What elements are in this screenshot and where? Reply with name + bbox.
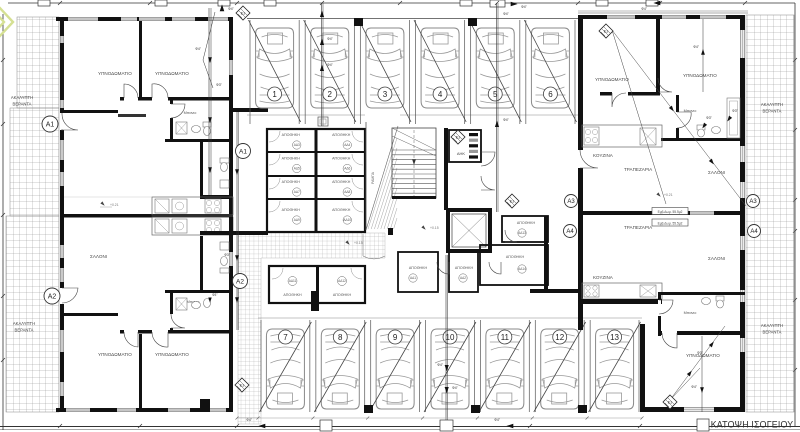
svg-text:Φ3": Φ3" xyxy=(224,253,231,257)
svg-text:Φ3": Φ3" xyxy=(706,116,713,120)
svg-text:ΒΕΡΑΝΤΑ: ΒΕΡΑΝΤΑ xyxy=(763,330,782,335)
svg-text:Φ4": Φ4" xyxy=(503,118,510,122)
svg-text:ΤΡΑΠΕΖΑΡΙΑ: ΤΡΑΠΕΖΑΡΙΑ xyxy=(624,225,653,230)
svg-text:A1: A1 xyxy=(46,122,55,129)
svg-text:ΑΔ8: ΑΔ8 xyxy=(344,190,350,194)
svg-text:ΒΕΡΑΝΤΑ: ΒΕΡΑΝΤΑ xyxy=(15,328,34,333)
svg-text:A2: A2 xyxy=(48,294,57,301)
svg-text:+0.15: +0.15 xyxy=(354,241,363,245)
svg-text:Φ3": Φ3" xyxy=(216,83,223,87)
svg-text:ΥΠΝΟΔΩΜΑΤΙΟ: ΥΠΝΟΔΩΜΑΤΙΟ xyxy=(683,73,717,78)
svg-text:ΑΠΟΘΗΚΗ: ΑΠΟΘΗΚΗ xyxy=(332,157,351,161)
svg-text:ΑΚΑΛΥΠΤΗ: ΑΚΑΛΥΠΤΗ xyxy=(13,321,35,326)
svg-text:ΑΔ6: ΑΔ6 xyxy=(344,167,350,171)
svg-text:ΑΠΟΘΗΚΗ: ΑΠΟΘΗΚΗ xyxy=(282,180,301,184)
svg-text:Φ3": Φ3" xyxy=(697,351,704,355)
svg-text:5: 5 xyxy=(493,90,498,99)
svg-text:4: 4 xyxy=(438,90,443,99)
svg-text:7: 7 xyxy=(283,333,288,342)
svg-text:ΑΠΟΘΗΚΗ: ΑΠΟΘΗΚΗ xyxy=(283,293,302,297)
svg-text:Φ4": Φ4" xyxy=(437,363,444,367)
svg-text:ΚΟΥΖΙΝΑ: ΚΟΥΖΙΝΑ xyxy=(593,275,614,280)
svg-text:ΑΠΟΘΗΚΗ: ΑΠΟΘΗΚΗ xyxy=(409,266,428,270)
svg-text:6: 6 xyxy=(548,90,553,99)
svg-text:ΒΕΡΑΝΤΑ: ΒΕΡΑΝΤΑ xyxy=(763,109,782,114)
svg-text:ΑΔ13: ΑΔ13 xyxy=(518,231,526,235)
svg-text:Φ4": Φ4" xyxy=(452,386,459,390)
svg-text:9: 9 xyxy=(393,333,398,342)
svg-text:2: 2 xyxy=(328,90,333,99)
svg-text:8: 8 xyxy=(338,333,343,342)
svg-text:A4: A4 xyxy=(566,229,574,235)
svg-text:ΑΔ7: ΑΔ7 xyxy=(294,190,300,194)
svg-text:A3: A3 xyxy=(567,199,575,205)
svg-text:ΑΔ5: ΑΔ5 xyxy=(294,167,300,171)
svg-text:Εμβ.Δωμ. 55.5μ2: Εμβ.Δωμ. 55.5μ2 xyxy=(658,210,683,214)
svg-text:ΒΕΡΑΝΤΑ: ΒΕΡΑΝΤΑ xyxy=(13,102,32,107)
svg-text:ΑΠΟΘΗΚΗ: ΑΠΟΘΗΚΗ xyxy=(506,255,525,259)
svg-text:ΤΡΑΠΕΖΑΡΙΑ: ΤΡΑΠΕΖΑΡΙΑ xyxy=(624,167,653,172)
svg-text:ΑΔ10: ΑΔ10 xyxy=(343,218,351,222)
svg-text:ΥΠΝΟΔΩΜΑΤΙΟ: ΥΠΝΟΔΩΜΑΤΙΟ xyxy=(595,77,629,82)
svg-text:13: 13 xyxy=(610,333,619,342)
svg-text:+0.21: +0.21 xyxy=(110,203,119,207)
svg-text:ΥΠΝΟΔΩΜΑΤΙΟ: ΥΠΝΟΔΩΜΑΤΙΟ xyxy=(155,71,189,76)
svg-text:Φ4": Φ4" xyxy=(246,418,253,422)
svg-text:Φ4": Φ4" xyxy=(641,7,648,11)
svg-text:ΑΚΑΛΥΠΤΗ: ΑΚΑΛΥΠΤΗ xyxy=(761,323,783,328)
svg-text:ΑΔ3: ΑΔ3 xyxy=(294,143,300,147)
svg-text:ΑΠΟΘΗΚΗ: ΑΠΟΘΗΚΗ xyxy=(332,208,351,212)
svg-text:Φ3": Φ3" xyxy=(732,109,739,113)
svg-text:ΚΟΥΖΙΝΑ: ΚΟΥΖΙΝΑ xyxy=(593,153,614,158)
svg-text:ΑΗΚ: ΑΗΚ xyxy=(457,151,466,156)
svg-text:Φ3": Φ3" xyxy=(212,293,217,297)
svg-text:ΑΠΟΘΗΚΗ: ΑΠΟΘΗΚΗ xyxy=(282,208,301,212)
svg-text:Φ4": Φ4" xyxy=(494,418,501,422)
svg-text:ΣΑΛΟΝΙ: ΣΑΛΟΝΙ xyxy=(708,256,725,261)
svg-text:ΑΠΟΘΗΚΗ: ΑΠΟΘΗΚΗ xyxy=(282,133,301,137)
svg-text:+0.21: +0.21 xyxy=(664,193,673,197)
svg-text:A4: A4 xyxy=(750,229,758,235)
svg-text:ΚΑΤΟΨΗ ΙΣΟΓΕΙΟΥ: ΚΑΤΟΨΗ ΙΣΟΓΕΙΟΥ xyxy=(711,420,794,430)
svg-text:10: 10 xyxy=(446,333,455,342)
svg-text:ΑΠΟΘΗΚΗ: ΑΠΟΘΗΚΗ xyxy=(333,293,352,297)
svg-text:1: 1 xyxy=(272,90,277,99)
svg-text:ΑΔ9: ΑΔ9 xyxy=(294,218,300,222)
svg-text:ΑΠΟΘΗΚΗ: ΑΠΟΘΗΚΗ xyxy=(517,221,536,225)
svg-text:Μπανιο: Μπανιο xyxy=(684,109,697,113)
svg-text:ΑΠΟΘΗΚΗ: ΑΠΟΘΗΚΗ xyxy=(282,157,301,161)
svg-text:Φ4": Φ4" xyxy=(195,47,202,51)
svg-text:A1: A1 xyxy=(239,148,247,155)
svg-text:ΥΠΝΟΔΩΜΑΤΙΟ: ΥΠΝΟΔΩΜΑΤΙΟ xyxy=(98,352,132,357)
svg-text:ΑΔ14: ΑΔ14 xyxy=(518,267,526,271)
svg-text:Φ4": Φ4" xyxy=(327,37,334,41)
svg-text:ΑΚΑΛΥΠΤΗ: ΑΚΑΛΥΠΤΗ xyxy=(11,95,33,100)
svg-text:Φ4": Φ4" xyxy=(691,385,698,389)
svg-text:3: 3 xyxy=(383,90,388,99)
svg-text:ΑΔ4: ΑΔ4 xyxy=(344,143,350,147)
svg-text:ΑΚΑΛΥΠΤΗ: ΑΚΑΛΥΠΤΗ xyxy=(761,102,783,107)
svg-text:Φ4": Φ4" xyxy=(228,7,235,11)
svg-text:ΥΠΝΟΔΩΜΑΤΙΟ: ΥΠΝΟΔΩΜΑΤΙΟ xyxy=(155,352,189,357)
svg-text:ΣΑΛΟΝΙ: ΣΑΛΟΝΙ xyxy=(708,170,725,175)
svg-text:ΑΠΟΘΗΚΗ: ΑΠΟΘΗΚΗ xyxy=(455,266,474,270)
svg-text:ΥΠΝΟΔΩΜΑΤΙΟ: ΥΠΝΟΔΩΜΑΤΙΟ xyxy=(98,71,132,76)
svg-text:Φ4": Φ4" xyxy=(693,45,700,49)
svg-text:ΑΠΟΘΗΚΗ: ΑΠΟΘΗΚΗ xyxy=(332,133,351,137)
svg-text:Φ4": Φ4" xyxy=(521,5,528,9)
svg-text:A2: A2 xyxy=(236,278,244,285)
svg-text:ΑΔ2: ΑΔ2 xyxy=(460,276,466,280)
svg-text:12: 12 xyxy=(555,333,564,342)
svg-text:+0.15: +0.15 xyxy=(430,226,439,230)
svg-text:ΑΔ11: ΑΔ11 xyxy=(289,279,297,283)
svg-text:A3: A3 xyxy=(749,199,757,205)
svg-text:ΑΠΟΘΗΚΗ: ΑΠΟΘΗΚΗ xyxy=(332,180,351,184)
svg-text:Φ4": Φ4" xyxy=(327,63,334,67)
svg-text:Φ4": Φ4" xyxy=(503,12,510,16)
svg-text:11: 11 xyxy=(501,333,510,342)
svg-text:ΑΔ12: ΑΔ12 xyxy=(338,279,346,283)
svg-text:ΡΑΜΠΑ: ΡΑΜΠΑ xyxy=(371,171,375,184)
svg-text:Εμβ.Δωμ. 55.5μ2: Εμβ.Δωμ. 55.5μ2 xyxy=(658,221,683,225)
svg-text:Μπανιο: Μπανιο xyxy=(184,111,197,115)
svg-text:Μπανιο: Μπανιο xyxy=(684,311,697,315)
svg-text:ΣΑΛΟΝΙ: ΣΑΛΟΝΙ xyxy=(90,254,107,259)
svg-text:ΑΔ1: ΑΔ1 xyxy=(410,276,416,280)
